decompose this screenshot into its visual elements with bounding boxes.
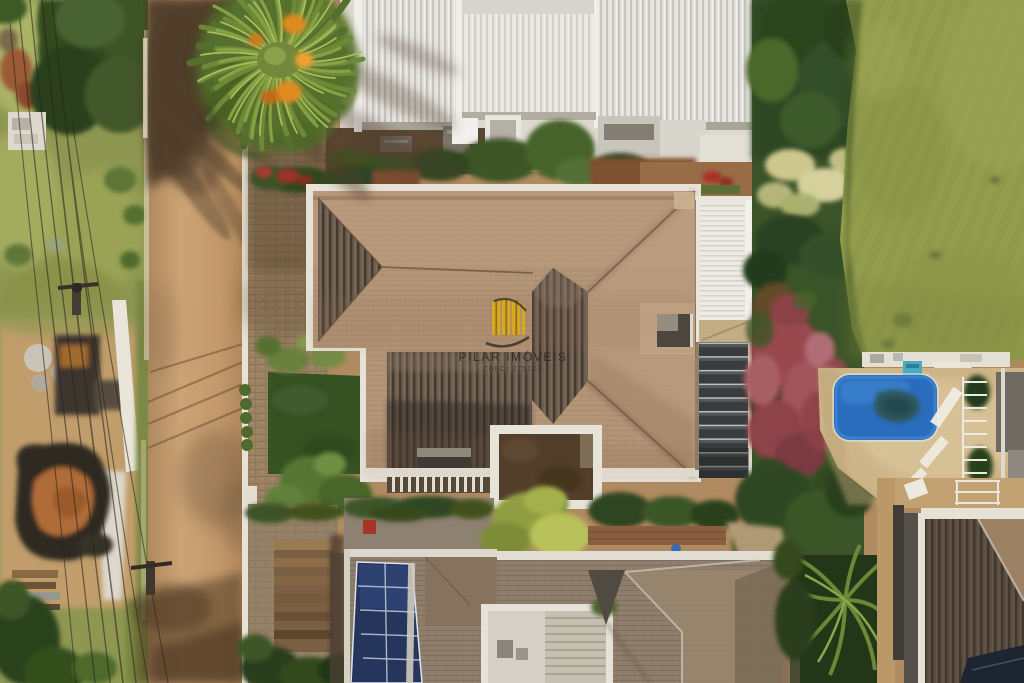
svg-text:PILAR IMÓVEIS: PILAR IMÓVEIS <box>459 349 568 364</box>
svg-text:CRECI 27510J: CRECI 27510J <box>483 366 542 373</box>
